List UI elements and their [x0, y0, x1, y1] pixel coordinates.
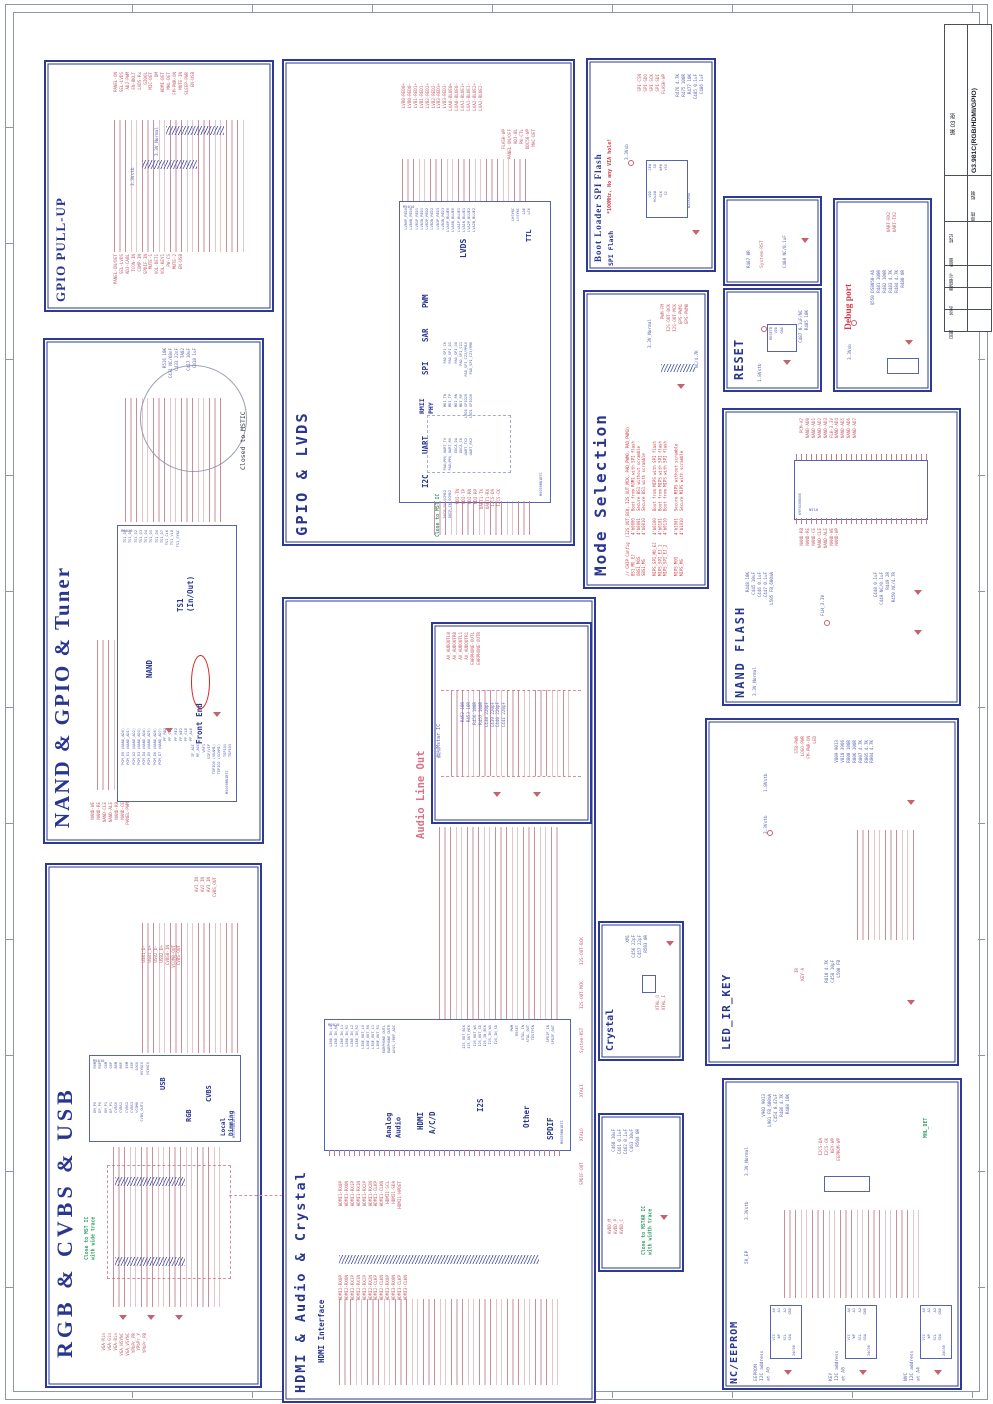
gnd-symbol	[666, 941, 674, 946]
net-label: NAND-AD3	[824, 418, 828, 438]
pin-label: MDI_RN	[455, 394, 459, 407]
pin-label: I2S_IN_WS	[489, 1025, 493, 1044]
pin-label: GND	[789, 1308, 793, 1315]
pin-label: DM_P1	[105, 1102, 109, 1113]
net-label: MUTE-1	[149, 254, 153, 269]
net-label: HDMI2-CLKP	[374, 1275, 378, 1300]
net-label: I2S-OUT-MCK	[580, 973, 584, 1009]
net-label: I2S-OUT-MCK	[673, 304, 677, 332]
tuner-parts: R516 10KC431 NC/68nFC433 22nFTA02C417 10…	[163, 348, 197, 390]
pin-label: MDI_RP	[460, 394, 464, 407]
audio-line-out-title: Audio Line Out	[416, 699, 427, 839]
net-label: VGA_HSYNC	[120, 1333, 124, 1356]
net-label: SEL-LVDS	[120, 254, 124, 274]
pin-label: XTAL_IN	[522, 1025, 526, 1040]
part-label: R476 4.7K	[676, 74, 680, 97]
spi-flash-ic: CE#SOWP#VSS VDDHOLD#SCKSI	[646, 160, 688, 218]
part-label: C440 220pF	[496, 702, 500, 727]
part-label: C439 220pF	[491, 702, 495, 727]
pin-label: PAD_SPI_DO	[455, 342, 459, 364]
panel-audio-line-out: AV_AUDOUTL0AV_AUDOUTR0AV_AUDOUTL1AV_AUDO…	[431, 622, 592, 824]
net-label: LVB0-RED0-	[408, 83, 412, 108]
pin-label: LINE_IN_R2	[356, 1025, 360, 1047]
part-label: R452 10R	[461, 702, 465, 722]
pin-label: A1	[928, 1308, 932, 1312]
net-label: HDMI1-RX2P	[363, 1181, 367, 1206]
note-close-to-m-star: 靠近Mstar IC	[437, 694, 442, 758]
ic-block-usb: USB	[160, 1064, 167, 1090]
gnd-symbol	[783, 360, 791, 365]
ic-block-spdif: SPDIF	[547, 1096, 555, 1140]
pin-label: SCL	[784, 1334, 788, 1341]
power-node	[767, 830, 773, 836]
net-label: LVDS-Rx	[138, 72, 142, 90]
ic-block-pwm: PWM	[422, 278, 430, 308]
wire-bundle	[857, 830, 917, 940]
ic-block-lvds: LVDS	[460, 220, 468, 258]
part-label: R449 2R	[886, 572, 890, 590]
part-label: C431 NC/68nF	[169, 348, 173, 378]
pin-label: LVB2N_RED2	[431, 208, 435, 230]
hdmi1-net-labels: HDMI1-RX0PHDMI1-RX0NHDMI1-RX1PHDMI1-RX1N…	[339, 1181, 402, 1245]
net-label: TCON-IN	[132, 254, 136, 272]
ic-block-hdmi: HDMI	[417, 1094, 425, 1130]
net-label: PANEL-ON/OFF	[508, 129, 512, 159]
net-label: AVDD_C	[620, 1219, 624, 1234]
ic-pins-right: VCCWPSCLSDA	[773, 1334, 793, 1356]
net-label: MAC-DET	[532, 129, 536, 147]
pin-label: PCM_D2 (NAND_AD2)	[133, 728, 137, 765]
net-label-green: MHL_DET	[924, 1094, 929, 1138]
rail-label: 5V_EP	[746, 1228, 751, 1264]
part-label: R450 NC/4.7R	[892, 572, 896, 602]
wire-bundle	[114, 120, 246, 252]
rail-label: 1.8Vstb	[759, 352, 764, 382]
highlight-ellipse	[191, 655, 210, 709]
part-label: C449 NC/0.1uF	[880, 572, 884, 605]
eeprom-net-labels: I2CS-DAI2CS-CKKEY-WPEEPROM-WP	[819, 1138, 841, 1208]
pin-label: LVB1P_RED1	[416, 208, 420, 230]
part-label: R487 0R	[747, 212, 751, 268]
net-label: HDMI2-RX0N	[345, 1275, 349, 1300]
part-label: R482 100R	[883, 270, 887, 293]
pin-label: TGPIO2 (SCKM1)	[218, 744, 222, 774]
pin-label: E0M	[126, 1062, 130, 1069]
lvds-net-labels: LVB0-RED0+LVB0-RED0-LVB1-RED1+LVB1-RED1-…	[402, 83, 483, 159]
net-label: MUTE-IN	[179, 72, 183, 90]
panel-reset: RESET RESETBVDDGND C487 0.1uF/NCR485 10K…	[723, 288, 822, 392]
part-label: C448 0.1uF	[874, 572, 878, 597]
pin-label: A2	[784, 1308, 788, 1312]
panel-mode-selection: Mode Selection // CHIP Config (I2S_OUT_B…	[583, 290, 709, 589]
ic-pins-nand: PCM_D0 (NAND_AD0)PCM_D1 (NAND_AD1)PCM_D2…	[122, 728, 194, 794]
part-label: C438 220pF	[485, 702, 489, 727]
power-node	[824, 620, 830, 626]
panel-title-debug-port: Debug port	[845, 218, 855, 330]
net-label: HDMI1-RX1P	[351, 1181, 355, 1206]
rail-label: 3.3V_Normal	[746, 1140, 751, 1176]
net-label: NAND-AD4	[835, 418, 839, 438]
ic-pins-right: VDDHOLD#SCKSI	[649, 191, 669, 215]
net-label: LVA2-BLUE2+	[473, 83, 477, 111]
part-label: C461 0.1uF	[618, 1129, 622, 1154]
note-closed-to-mstic: Closed to MSTIC	[239, 370, 248, 470]
ic-pin-stubs	[329, 1150, 564, 1156]
net-label: AV_AUDOUTR0	[453, 632, 457, 660]
pin-label: LINE_OUT_L0	[362, 1025, 366, 1049]
net-label: YPbPr_Y	[137, 1333, 141, 1351]
net-label: LVB2-RED2+	[426, 83, 430, 108]
net-label: I2S-OUT-BCK	[580, 929, 584, 965]
net-label: NAND-RB	[115, 802, 119, 820]
pin-label: PF_RE2	[175, 728, 179, 741]
rail-label: FLH_3.3V	[822, 578, 827, 616]
part-label: C445 10uF	[752, 572, 756, 595]
net-label: SPI-SCK	[650, 74, 654, 92]
part-label: C456 22pF	[632, 935, 636, 958]
part-label: C417 10uF	[187, 348, 191, 371]
net-label: LVB1-RED1+	[414, 83, 418, 108]
net-label: HDMI1-RX2N	[369, 1181, 373, 1206]
audio-out-net-labels: AV_AUDOUTL0AV_AUDOUTR0AV_AUDOUTL1AV_AUDO…	[447, 632, 481, 690]
net-label: EARPHONE-OUTR	[477, 632, 481, 665]
net-label: LOGO-PWR	[801, 736, 805, 756]
ic-part: 24C08	[793, 1332, 797, 1356]
part-label: R516 10K	[163, 348, 167, 368]
pin-label: CVBS2	[126, 1102, 130, 1113]
net-label: LVA0-BLUE0-	[455, 83, 459, 111]
part-label: Q550 DS8050-A6	[871, 270, 875, 305]
pin-label: TS1_SYNC	[177, 530, 181, 547]
pin-label: LINE_OUT_R1	[377, 1025, 381, 1049]
net-label: LVB3-RED3-	[443, 83, 447, 108]
net-label: HDMI-DET	[161, 72, 165, 92]
debug-parts: Q550 DS8050-A6R481 100RR482 100RR483 4.7…	[871, 270, 905, 350]
pin-label: DP_P0	[99, 1102, 103, 1113]
wire-bundle	[142, 923, 242, 1053]
nand-parts-left: R448 10KC445 10uFC446 0.1uFC447 0.1uFL50…	[746, 572, 774, 642]
pin-label: VDD	[775, 327, 779, 334]
panel-title-gpio-lvds: GPIO & LVDS	[294, 346, 310, 536]
ic-pins-right: VCCWPSCLSDA	[848, 1334, 868, 1356]
power-node	[761, 326, 767, 332]
net-label: VGA-Rin	[102, 1333, 106, 1351]
net-label: NAND-WE	[830, 528, 834, 546]
net-label: LVA1-BLUE1+	[461, 83, 465, 111]
net-label: FM-PWR-ON	[173, 72, 177, 95]
net-label: LVB2-RED2-	[432, 83, 436, 108]
part-label: R477 10K	[688, 74, 692, 94]
pin-label: TESTPIN	[532, 1025, 536, 1040]
net-label: SLEEP-PWR	[185, 72, 189, 95]
resistor-network	[166, 126, 224, 135]
dashed-wire	[441, 776, 581, 777]
net-label: HDMI1-SCL	[386, 1181, 390, 1204]
pin-label: A1	[853, 1308, 857, 1312]
net-label: HDMI1-CLKN	[380, 1181, 384, 1206]
ic-pins-left: A0A1A2GND	[773, 1308, 793, 1330]
crystal-parts: XM1C456 22pFC457 22pFR503 0R	[626, 935, 648, 995]
panel-title-nand-gpio-tuner: NAND & GPIO & Tuner	[51, 358, 73, 828]
panel-title-gpio-pullup: GPIO PULL-UP	[54, 180, 68, 302]
ic-block-nand: NAND	[146, 638, 154, 678]
ic-pins: RESETBVDDGND	[770, 327, 784, 349]
main-ic: M9010 LINE_IN_L0LINE_IN_R0LINE_IN_L1LINE…	[324, 1019, 571, 1151]
nand-net-labels: NAND-WENAND-RENAND-CLENAND-ALENAND-RBNAN…	[91, 802, 131, 838]
ir-parts: R810 4.7KC458 10pFL508 FB	[825, 960, 841, 1040]
gpio-net-labels: FLASH-WPPANEL-ON/OFFADJ-BLPW-CTLDDC50-WP…	[502, 129, 536, 201]
part-label: R456 100R	[473, 702, 477, 725]
pin-label: TS1_D2	[135, 530, 139, 543]
pin-label: PAD_SPI_DI	[449, 342, 453, 364]
pin-label: WP#	[660, 164, 664, 171]
spi-net-labels: SPI-CSNSPI-SDOSPI-SCKSPI-SDIFLASH-WP	[638, 74, 666, 124]
net-label: ADJ-PWM	[126, 72, 130, 90]
nand-ic: K9F4G08U0B N510	[794, 460, 928, 520]
led-parts: V809 9013V810 3906R808 100RR806 100RR807…	[835, 740, 875, 830]
pin-label: PAD_SPI_CZ1	[460, 342, 464, 366]
net-label: NAND-CE	[121, 802, 125, 820]
pin-label: EARPHONE_OUTL	[383, 1025, 387, 1053]
net-label: NAND-ALE	[824, 528, 828, 548]
avdd-parts: C460 10uFC461 0.1uFC462 0.1uFC463 10uFR5…	[612, 1129, 640, 1215]
title-block-fields: 标记数量更改单号签名日期	[949, 223, 954, 339]
part-label: L901 FB_600mA	[768, 1094, 772, 1127]
gnd-symbol	[147, 1315, 155, 1320]
gnd-symbol	[533, 792, 541, 797]
ic-block-spi: SPI	[422, 345, 430, 375]
ic-part: M5059BN1BTC	[226, 746, 230, 794]
gnd-symbol	[859, 1370, 867, 1375]
pin-label: AVSS_VREF_ADC	[393, 1025, 397, 1053]
part-label: C418 1uF	[193, 348, 197, 368]
net-label: MUTE-2	[173, 254, 177, 269]
ic-pins-ts1: TS1_D0TS1_D1TS1_D2TS1_D3TS1_D4TS1_D5TS1_…	[124, 530, 180, 580]
net-label: HDMI2-RX2N	[369, 1275, 373, 1300]
nand-parts-right: C448 0.1uFC449 NC/0.1uFR449 2RR450 NC/4.…	[874, 572, 896, 642]
net-label: FLH-3.3V	[830, 418, 834, 438]
resistor-network	[142, 160, 197, 169]
pin-label: I2S_OUT_MCK	[468, 1025, 472, 1049]
resistor-bank	[339, 1255, 539, 1264]
pin-label: TS1_VLD	[171, 530, 175, 545]
panel-gpio-lvds: GPIO & LVDS LVB0-RED0+LVB0-RED0-LVB1-RED…	[282, 59, 575, 546]
pin-label: A1	[778, 1308, 782, 1312]
pin-label: HOLD#	[654, 191, 658, 202]
part-label: C485 0.1uF	[694, 74, 698, 99]
panel-nand-flash: NAND FLASH PCM-A7NAND-AD0NAND-AD1NAND-AD…	[722, 408, 961, 706]
pin-label: SIF/VIF	[208, 744, 212, 759]
title-block-field: 日期	[949, 319, 954, 339]
led-rails: 1.8Vstb3.3Vstb	[765, 760, 770, 834]
panel-title-boot-loader: Boot Loader SPI Flash	[594, 70, 603, 262]
pin-label: PCM_D6 (NAND_AD6)	[154, 728, 158, 765]
strap-net-labels: PWM-FMI2S-OUT-BCKI2S-OUT-MCKGPS-PWM1GPS-…	[661, 304, 689, 360]
panel-led-ir-key: LED_IR_KEY STB-PWRLOGO-PWRFM-PWR-ONLED V…	[705, 718, 959, 1066]
title-block: G3.981C(RGB/HDMI/GPIO) 第 03 张 拟制 审核 标记数量…	[944, 24, 992, 332]
net-label: VGA-Gin	[108, 1333, 112, 1351]
net-label: UART-TX2	[893, 212, 897, 232]
ic-part: M5059BN1BTC	[233, 1092, 237, 1138]
net-label: PANEL-ON	[114, 72, 118, 92]
pin-label: GND	[864, 1308, 868, 1315]
part-label: C463 10uF	[630, 1129, 634, 1152]
wire-bundle	[97, 640, 115, 790]
eeprom-ic: A0A1A2GND VCCWPSCLSDA 24C08	[920, 1305, 952, 1359]
part-label: V810 3906	[841, 740, 845, 763]
title-block-field: 数量	[949, 247, 954, 267]
part-label: R810 4.7K	[825, 960, 829, 983]
pin-label: SPDIF_OUT	[552, 1025, 556, 1044]
pin-label: A2	[934, 1308, 938, 1312]
mode-config-text: // CHIP Config (I2S_OUT_BCK, I2S_OUT_MCK…	[625, 348, 684, 576]
subtitle-spi-flash: SPI Flash	[608, 216, 615, 266]
main-ic: M5010 R0MR0PG0MG0PB0MB0PE0ME0PSOG0HSYNC0…	[89, 1055, 241, 1142]
title-block-field: 签名	[949, 295, 954, 315]
note-close-to-mst: Close to MST IC with wide trace	[85, 1165, 98, 1260]
net-label: EARPHONE-OUTL	[471, 632, 475, 665]
net-label: GI06L	[144, 72, 148, 85]
pin-label: PCM_D5 (NAND_AD5)	[148, 728, 152, 765]
panel-title-nc-eeprom: NC/EEPROM	[730, 1292, 741, 1384]
net-label: NAND-AD7	[853, 418, 857, 438]
net-label: AV_AUDOUTL1	[459, 632, 463, 660]
crystal-net-labels: XTAL_OXTAL_I	[656, 995, 666, 1045]
net-label: KEY-WP	[831, 1138, 835, 1153]
net-label: NAND-RE	[97, 802, 101, 820]
net-label: HDMI2-RX2P	[363, 1275, 367, 1300]
part-label: R807 4.7K	[859, 740, 863, 763]
pin-label: PCM_D1 (NAND_AD1)	[127, 728, 131, 765]
pin-label: SI	[665, 191, 669, 195]
net-label: LVA1-BLUE1-	[467, 83, 471, 111]
ic-block-rmii-phy: RMII PHY	[418, 380, 436, 414]
pin-label: GND	[939, 1308, 943, 1315]
ic-block-cvbs: CVBS	[206, 1068, 213, 1102]
ic-pins-audio: LINE_IN_L0LINE_IN_R0LINE_IN_L1LINE_IN_R1…	[330, 1025, 397, 1081]
pin-label: VSYNC0	[147, 1062, 151, 1075]
pullup-signals-top: PANEL-ONSEL-LVDSADJ-PWMEN-BKLTLVDS-RxGI0…	[114, 72, 195, 120]
gnd-symbol	[213, 712, 221, 717]
net-label: NAND-RE	[806, 528, 810, 546]
part-label: C454 0.47uF	[774, 1094, 778, 1122]
net-label: HDMI2-RX1N	[357, 1275, 361, 1300]
part-label: C447 0.1uF	[764, 572, 768, 597]
net-label: PW-CTL	[520, 129, 524, 144]
net-label: EN-BKLT	[132, 72, 136, 90]
pin-label: WP	[778, 1334, 782, 1338]
net-label: NAND-WE	[91, 802, 95, 820]
net-label: NAND-AD2	[818, 418, 822, 438]
pin-label: LVB1N_RED1	[421, 208, 425, 230]
panel-rgb-cvbs-usb: RGB & CVBS & USB AV1_INAV2_INAV3_INCVBS_…	[45, 863, 262, 1388]
net-label: HDMI3-CLKN	[404, 1275, 408, 1300]
pin-label: I2S_OUT_SD	[479, 1025, 483, 1047]
debug-net-labels: UART-RX2UART-TX2	[887, 212, 897, 264]
net-label: AV_AUDOUTL0	[447, 632, 451, 660]
net-label: SPI-SDI	[656, 74, 660, 92]
right-net-labels: I2S-OUT-BCKI2S-OUT-MCKSystem-RSTXTALIXTA…	[580, 929, 584, 1185]
part-label: C487 0.1uF/NC	[799, 310, 803, 343]
pin-label: SDA	[939, 1334, 943, 1341]
title-block-field: 标记	[949, 223, 954, 243]
net-label: PANEL-PWM	[126, 802, 130, 825]
spi-parts: R476 4.7KR475 100RR477 10KC485 0.1uFC486…	[676, 74, 704, 124]
net-label: SPDIF-IN	[144, 254, 148, 274]
part-label: R483 4.7K	[889, 270, 893, 293]
panel-nand-gpio-tuner: NAND & GPIO & Tuner Closed to MSTIC R516…	[43, 338, 264, 844]
pullup-signals-bottom: PANEL-ON/DETSEL-LVDSADJ-CABLTCON-INCOMP-…	[114, 254, 183, 302]
ic-pins-right: VCCWPSCLSDA	[923, 1334, 943, 1356]
net-label: NAND-CE	[812, 528, 816, 546]
rail-label: 3.3Vstb	[132, 156, 137, 186]
led-net-labels: STB-PWRLOGO-PWRFM-PWR-ONLED	[795, 736, 817, 806]
ic-part: K9F4G08U0B	[799, 465, 803, 515]
part-label: NC/4.7K	[695, 328, 699, 368]
ic-block-ttl: TTL	[526, 216, 533, 242]
note-100mhz: *100MHz, No any VIA hole!	[608, 84, 613, 214]
net-label: LVA0-BLUE0+	[449, 83, 453, 111]
ic-block-i2s: I2S	[477, 1084, 485, 1112]
panel-title-rgb-cvbs-usb: RGB & CVBS & USB	[53, 893, 76, 1358]
net-label: NAND-AD1	[812, 418, 816, 438]
pin-label: SCL	[934, 1334, 938, 1341]
ic-pin-stubs	[796, 518, 928, 524]
panel-nc-eeprom: NC/EEPROM V902 9013L901 FB_600mAC454 0.4…	[722, 1078, 962, 1390]
field-check: 审核	[971, 201, 976, 221]
net-label: YPbPr_PR	[132, 1333, 136, 1353]
part-label: C458 10pF	[831, 960, 835, 983]
net-label: XTALO	[580, 1105, 584, 1141]
gnd-symbol	[801, 238, 809, 243]
pin-label: TS1_D5	[150, 530, 154, 543]
part-label: C462 0.1uF	[624, 1129, 628, 1154]
net-label: GPS-PWM0	[685, 304, 689, 324]
ic-pins-i2s: I2S_OUT_BCKI2S_OUT_MCKI2S_OUT_WSI2S_OUT_…	[463, 1025, 498, 1075]
net-label: LVB0-RED0+	[402, 83, 406, 108]
panel-title-mode-selection: Mode Selection	[593, 304, 610, 576]
ic-part: M5059BN1BTC	[561, 1096, 565, 1144]
gnd-symbol	[784, 1370, 792, 1375]
pin-label: LVB3P_RED3	[437, 208, 441, 230]
net-label: CVBS_OUT	[213, 877, 217, 897]
eeprom-ic: A0A1A2GND VCCWPSCLSDA 24C08	[845, 1305, 877, 1359]
net-label: EN-USB	[191, 72, 195, 87]
panel-gpio-pullup: GPIO PULL-UP PANEL-ONSEL-LVDSADJ-PWMEN-B…	[44, 60, 274, 312]
net-label: HDMI1-RX0N	[345, 1181, 349, 1206]
gnd-symbol	[914, 590, 922, 595]
net-label: STB-PWR	[795, 736, 799, 754]
rail-label: 3.3V_Normal	[754, 648, 759, 696]
ic-block-rgb: RGB	[186, 1096, 193, 1122]
ic-pins-left: CE#SOWP#VSS	[649, 164, 669, 188]
ic-pins-spdif: SPDIF_INSPDIF_OUT	[547, 1025, 556, 1065]
net-label: NAND-AD5	[841, 418, 845, 438]
net-label: SPI-CSN	[638, 74, 642, 92]
part-label: R504 0R	[636, 1129, 640, 1147]
net-label: MHL-DET	[167, 72, 171, 90]
net-label: VGA-Bin	[114, 1333, 118, 1351]
net-label: NAND-AD0	[806, 418, 810, 438]
ic-pins-other: PWMRESETXTAL_INXTAL_OUTTESTPIN	[511, 1025, 536, 1069]
pin-label: CVBS_OUT1	[141, 1102, 145, 1121]
net-label: PCM-A7	[800, 418, 804, 433]
gnd-symbol	[934, 1370, 942, 1375]
ic-pins-left: A0A1A2GND	[848, 1308, 868, 1330]
net-label: HDMI2-RX0P	[339, 1275, 343, 1300]
rail-label: 3.3Vsb	[626, 130, 631, 160]
main-ic: M5010 TS1 (In/Out) NAND Front End TS1_D0…	[117, 525, 237, 802]
